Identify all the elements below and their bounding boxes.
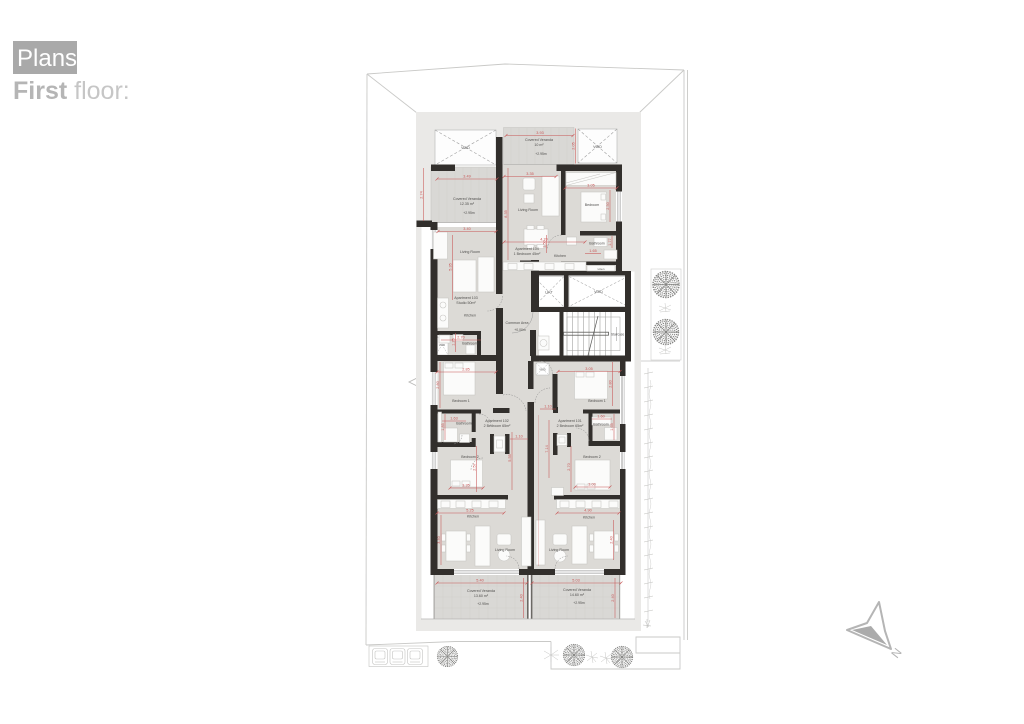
svg-text:1.60: 1.60	[597, 415, 604, 419]
svg-text:1.85: 1.85	[441, 423, 445, 430]
svg-text:+0.00m: +0.00m	[514, 328, 526, 332]
svg-text:2.70: 2.70	[457, 336, 464, 340]
svg-text:Apartment 102: Apartment 102	[485, 419, 509, 423]
svg-text:3.35: 3.35	[462, 484, 469, 488]
svg-text:5.55: 5.55	[508, 454, 512, 461]
svg-text:Kitchen: Kitchen	[467, 515, 479, 519]
svg-text:Staircase: Staircase	[611, 332, 625, 336]
svg-text:+2.95m: +2.95m	[463, 211, 475, 215]
svg-text:Apartment 103: Apartment 103	[454, 296, 478, 300]
svg-text:Plans: Plans	[17, 45, 77, 72]
svg-text:VOID: VOID	[594, 290, 603, 294]
svg-text:Bedroom 1: Bedroom 1	[452, 399, 470, 403]
svg-text:+2.95m: +2.95m	[477, 602, 489, 606]
svg-text:1.10: 1.10	[544, 405, 551, 409]
svg-text:5.35: 5.35	[449, 263, 453, 270]
svg-text:2.80: 2.80	[609, 380, 613, 387]
svg-text:3.40: 3.40	[463, 227, 470, 231]
svg-text:LIFT: LIFT	[545, 290, 553, 294]
svg-text:Living Room: Living Room	[460, 250, 480, 254]
svg-text:Covered Veranda: Covered Veranda	[563, 588, 591, 592]
svg-text:3.05: 3.05	[585, 367, 592, 371]
svg-text:2.05: 2.05	[572, 142, 576, 149]
svg-text:13.60 m²: 13.60 m²	[474, 594, 489, 598]
svg-text:VOID: VOID	[539, 368, 545, 372]
svg-text:2 Bedroom 65m²: 2 Bedroom 65m²	[557, 424, 585, 428]
svg-text:1.25: 1.25	[452, 338, 456, 345]
svg-text:VOID: VOID	[593, 145, 602, 149]
svg-text:Kitchen: Kitchen	[554, 254, 566, 258]
svg-text:Studio 50m²: Studio 50m²	[456, 301, 476, 305]
svg-text:1.65: 1.65	[589, 249, 596, 253]
svg-text:Common Area: Common Area	[506, 321, 529, 325]
svg-text:Bedroom 2: Bedroom 2	[583, 455, 601, 459]
svg-text:5.40: 5.40	[476, 579, 483, 583]
svg-text:10 m²: 10 m²	[534, 143, 544, 147]
svg-text:3.05: 3.05	[587, 184, 594, 188]
svg-text:3.93: 3.93	[536, 131, 543, 135]
svg-text:N: N	[888, 645, 904, 660]
svg-text:3.35: 3.35	[526, 172, 533, 176]
svg-text:12.35 m²: 12.35 m²	[460, 202, 475, 206]
svg-text:Bathroom: Bathroom	[462, 342, 478, 346]
svg-text:2.40: 2.40	[520, 594, 524, 601]
svg-text:Covered Veranda: Covered Veranda	[525, 138, 553, 142]
svg-text:+2.95m: +2.95m	[535, 152, 547, 156]
svg-text:Bathroom: Bathroom	[456, 422, 472, 426]
svg-text:First floor:: First floor:	[13, 77, 130, 105]
svg-text:2 Bedroom 65m²: 2 Bedroom 65m²	[484, 424, 512, 428]
svg-text:Kitchen: Kitchen	[583, 516, 595, 520]
svg-text:+2.95m: +2.95m	[573, 601, 585, 605]
svg-text:Covered Veranda: Covered Veranda	[467, 589, 495, 593]
svg-text:4.90: 4.90	[584, 509, 591, 513]
svg-text:Bathroom: Bathroom	[589, 242, 605, 246]
svg-text:Living Room: Living Room	[549, 548, 569, 552]
svg-text:VOID: VOID	[439, 343, 445, 347]
svg-text:2.85: 2.85	[462, 368, 469, 372]
svg-text:1.10: 1.10	[515, 435, 522, 439]
svg-text:2.74: 2.74	[420, 191, 424, 198]
svg-text:VOID: VOID	[461, 146, 470, 150]
svg-text:2.57: 2.57	[473, 463, 477, 470]
svg-text:5.25: 5.25	[466, 509, 473, 513]
svg-text:2.40: 2.40	[611, 594, 615, 601]
svg-text:Covered Veranda: Covered Veranda	[453, 197, 481, 201]
svg-text:Living Room: Living Room	[495, 548, 515, 552]
svg-text:3.00: 3.00	[588, 483, 595, 487]
svg-text:1.63: 1.63	[450, 417, 457, 421]
svg-text:3.49: 3.49	[463, 175, 470, 179]
svg-text:Bedroom: Bedroom	[585, 203, 600, 207]
svg-text:Living Room: Living Room	[518, 208, 538, 212]
svg-text:5.03: 5.03	[572, 579, 579, 583]
svg-text:2.70: 2.70	[567, 463, 571, 470]
svg-text:3.40: 3.40	[437, 536, 441, 543]
svg-text:Linen: Linen	[598, 267, 605, 271]
svg-text:Apartment 101: Apartment 101	[558, 419, 582, 423]
svg-text:1.65: 1.65	[610, 423, 614, 430]
svg-text:Apartment 104: Apartment 104	[515, 247, 539, 251]
svg-text:Bathroom: Bathroom	[593, 423, 609, 427]
svg-text:Kitchen: Kitchen	[464, 314, 476, 318]
svg-text:1.50: 1.50	[543, 240, 547, 247]
svg-text:Bedroom 2: Bedroom 2	[461, 455, 479, 459]
svg-text:1.77: 1.77	[608, 238, 612, 245]
svg-text:14.60 m²: 14.60 m²	[570, 593, 585, 597]
svg-text:7.14: 7.14	[545, 445, 549, 452]
svg-text:2.40: 2.40	[610, 536, 614, 543]
svg-text:Bedroom 1: Bedroom 1	[588, 399, 606, 403]
svg-text:8.35: 8.35	[504, 210, 508, 217]
svg-text:1 Bedroom 45m²: 1 Bedroom 45m²	[514, 252, 542, 256]
svg-text:2.50: 2.50	[606, 202, 610, 209]
svg-text:2.80: 2.80	[436, 381, 440, 388]
